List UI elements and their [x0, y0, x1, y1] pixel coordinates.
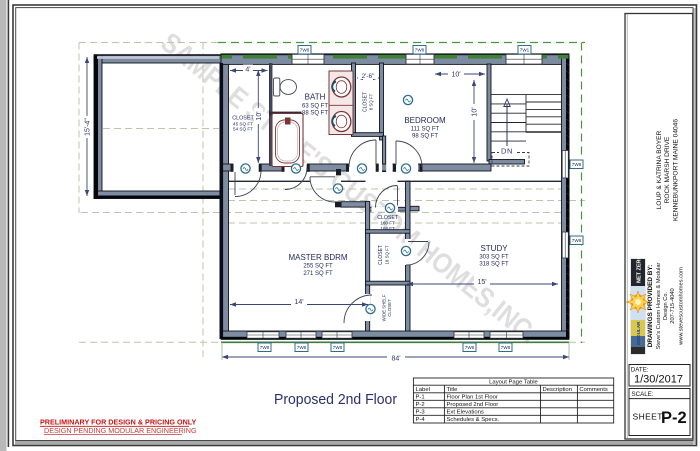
svg-text:BATH: BATH: [305, 93, 326, 102]
svg-text:8 SQ FT: 8 SQ FT: [369, 93, 374, 110]
svg-text:207-715-4040: 207-715-4040: [670, 288, 676, 323]
svg-text:14': 14': [294, 299, 303, 306]
svg-text:DN: DN: [501, 147, 513, 156]
svg-text:271 SQ FT: 271 SQ FT: [303, 271, 333, 277]
svg-text:ROCK MARSH DRIVE: ROCK MARSH DRIVE: [664, 136, 671, 203]
svg-text:DESIGN PENDING MODULAR ENGINEE: DESIGN PENDING MODULAR ENGINEERING: [44, 426, 197, 435]
svg-text:111 SQ FT: 111 SQ FT: [411, 127, 440, 133]
svg-text:SCALE:: SCALE:: [632, 391, 654, 398]
svg-text:Comments: Comments: [579, 387, 608, 393]
svg-text:www.stevescustomhomes.com: www.stevescustomhomes.com: [679, 267, 685, 346]
svg-text:4': 4': [245, 67, 250, 74]
svg-text:88 SQ FT: 88 SQ FT: [302, 111, 328, 117]
svg-text:160 FT: 160 FT: [380, 221, 395, 226]
svg-text:NET ZERO: NET ZERO: [637, 254, 643, 283]
svg-text:SHEET: SHEET: [633, 412, 663, 422]
svg-text:168 FT: 168 FT: [380, 226, 395, 231]
svg-text:18 SQ FT: 18 SQ FT: [385, 245, 390, 264]
svg-text:Floor Plan 1st Floor: Floor Plan 1st Floor: [447, 395, 498, 401]
svg-text:Label: Label: [416, 387, 430, 393]
svg-text:1/30/2017: 1/30/2017: [634, 374, 683, 386]
svg-text:7W8: 7W8: [297, 345, 307, 350]
svg-text:318 SQ FT: 318 SQ FT: [479, 262, 509, 268]
svg-text:P-1: P-1: [416, 395, 425, 401]
svg-text:10': 10': [472, 107, 479, 116]
svg-text:Proposed 2nd Floor: Proposed 2nd Floor: [274, 392, 397, 408]
svg-text:MASTER BDRM: MASTER BDRM: [288, 253, 347, 262]
svg-text:303 SQ FT: 303 SQ FT: [479, 255, 509, 261]
svg-text:7W1: 7W1: [520, 48, 530, 53]
svg-text:63 SQ FT: 63 SQ FT: [302, 104, 328, 110]
svg-text:LOUP & KATRINA BOYER: LOUP & KATRINA BOYER: [656, 130, 663, 209]
svg-text:Ext Elevations: Ext Elevations: [447, 410, 484, 416]
svg-text:54 SQ FT: 54 SQ FT: [233, 127, 253, 132]
svg-text:KENNEBUNKPORT MAINE 04046: KENNEBUNKPORT MAINE 04046: [673, 119, 680, 221]
svg-text:P-2: P-2: [416, 402, 425, 408]
svg-text:7W8: 7W8: [572, 238, 582, 243]
svg-text:10': 10': [256, 111, 263, 120]
svg-text:P-3: P-3: [416, 410, 426, 416]
svg-text:15'-4": 15'-4": [85, 118, 92, 136]
svg-text:BEDROOM: BEDROOM: [404, 116, 446, 125]
svg-text:7W8: 7W8: [260, 345, 270, 350]
svg-text:15': 15': [477, 279, 486, 286]
svg-text:STUDY: STUDY: [480, 244, 508, 253]
svg-text:CLOSET: CLOSET: [387, 299, 392, 317]
svg-text:7W8: 7W8: [300, 48, 310, 53]
svg-text:Schedules & Specs.: Schedules & Specs.: [447, 417, 500, 423]
svg-text:Layout Page Table: Layout Page Table: [489, 380, 538, 386]
svg-text:Title: Title: [447, 387, 459, 393]
svg-text:255 SQ FT: 255 SQ FT: [303, 264, 333, 270]
svg-text:P-4: P-4: [416, 417, 426, 423]
svg-text:WIDE SHELF: WIDE SHELF: [382, 294, 387, 321]
svg-text:DATE:: DATE:: [631, 367, 649, 374]
svg-text:2'-6": 2'-6": [362, 73, 375, 80]
svg-text:Description: Description: [543, 387, 572, 393]
svg-text:Proposed 2nd Floor: Proposed 2nd Floor: [447, 402, 499, 408]
svg-text:CLOSET: CLOSET: [378, 245, 384, 265]
svg-text:MODULAR: MODULAR: [636, 321, 641, 345]
svg-text:98 SQ FT: 98 SQ FT: [412, 134, 438, 140]
svg-text:7W8: 7W8: [465, 345, 475, 350]
svg-text:7W8: 7W8: [333, 345, 343, 350]
svg-text:DRAWINGS PROVIDED BY:: DRAWINGS PROVIDED BY:: [647, 265, 654, 348]
svg-text:84': 84': [391, 355, 400, 362]
svg-text:Steve's Custom Homes & Modular: Steve's Custom Homes & Modular: [656, 263, 662, 350]
svg-text:P-2: P-2: [661, 409, 687, 427]
svg-text:Design Co.: Design Co.: [663, 292, 669, 321]
svg-text:7W8: 7W8: [501, 345, 511, 350]
svg-text:7W8: 7W8: [415, 48, 425, 53]
svg-text:10': 10': [451, 72, 460, 79]
svg-text:7W8: 7W8: [572, 162, 582, 167]
